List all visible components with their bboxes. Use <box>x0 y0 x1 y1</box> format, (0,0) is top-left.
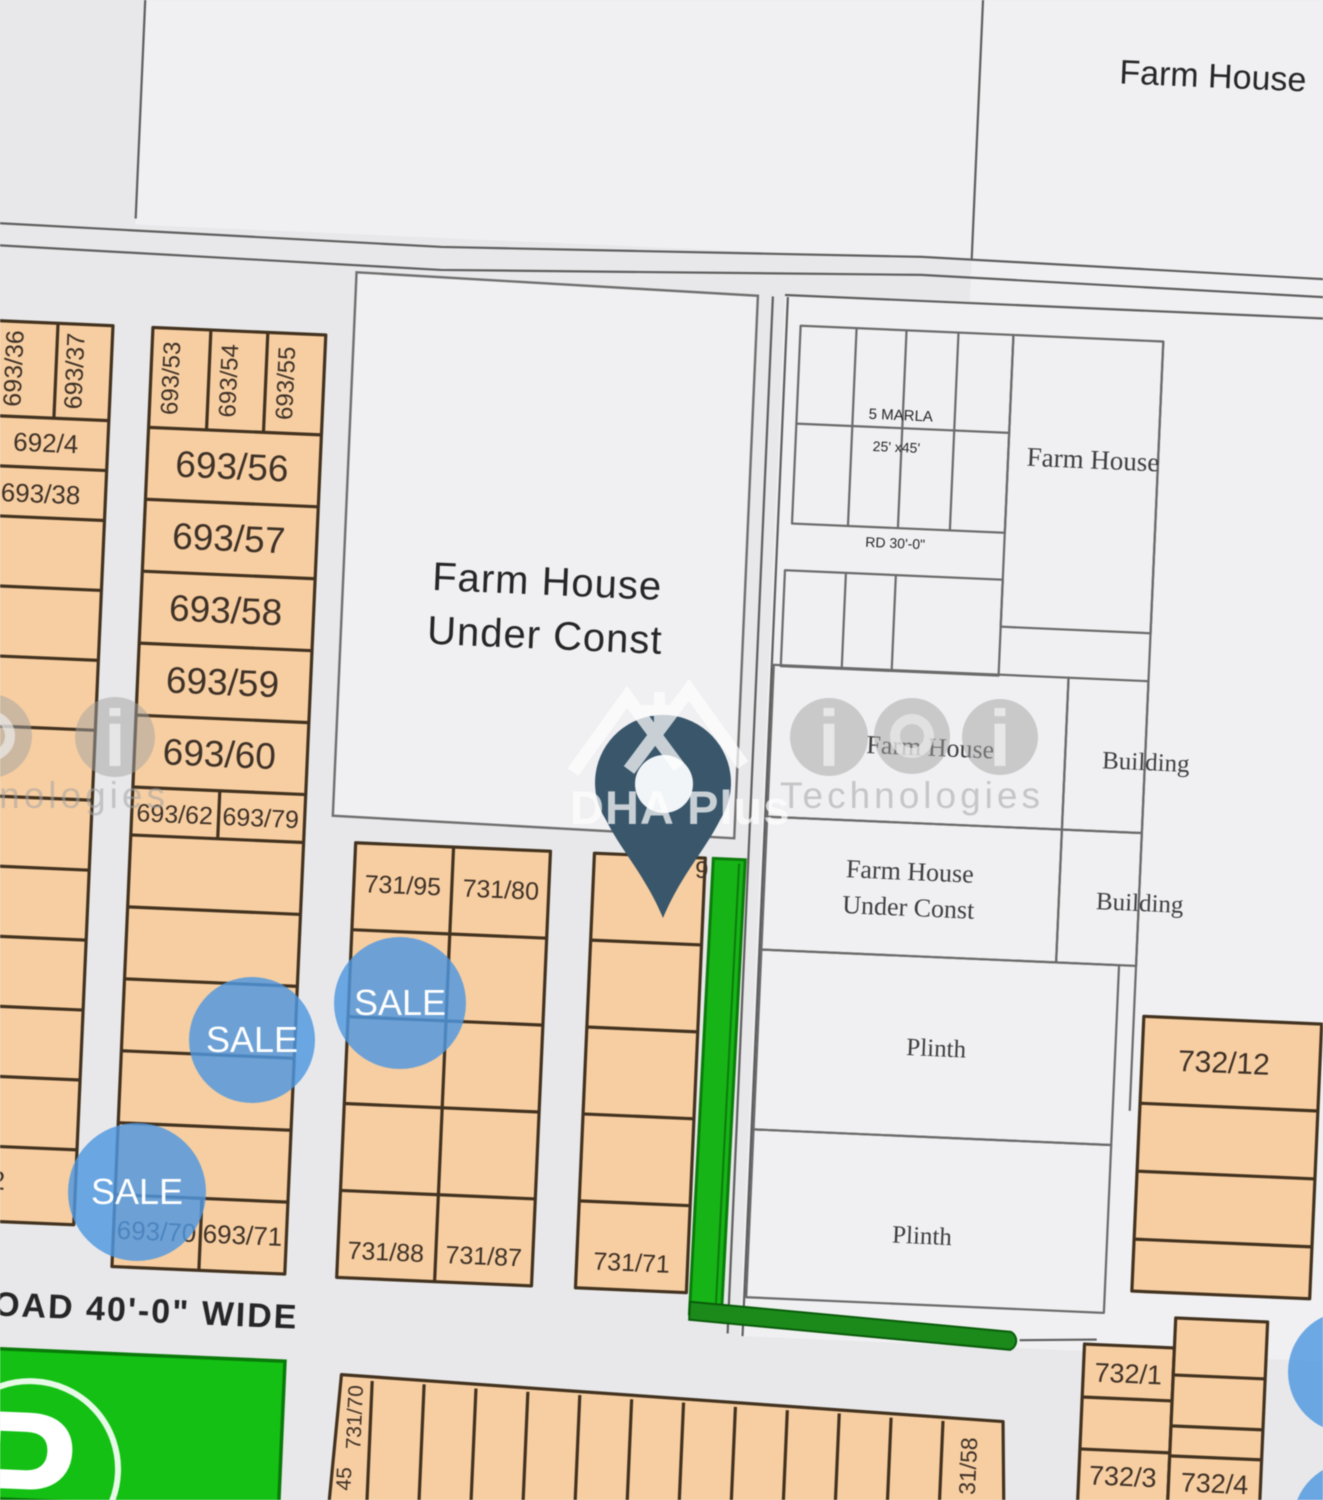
plot-label-731-87: 731/87 <box>445 1241 523 1272</box>
plot-label-31-58: 31/58 <box>954 1437 982 1496</box>
plinth-upper-label: Plinth <box>906 1034 967 1064</box>
fh-under-const-right-line1: Farm House <box>845 854 974 889</box>
plot-label-731-88: 731/88 <box>347 1237 425 1268</box>
plot-label-732-4: 732/4 <box>1180 1467 1249 1500</box>
building-lower-label: Building <box>1095 888 1184 919</box>
plot-label-731-79-partial: 9 <box>695 857 710 885</box>
plot-label-731-95: 731/95 <box>364 870 442 901</box>
sale-badge[interactable]: SALE <box>334 937 466 1069</box>
building-upper-label: Building <box>1102 747 1191 778</box>
plot-label-693-37: 693/37 <box>59 332 90 410</box>
sale-badge[interactable]: SALE <box>68 1123 206 1261</box>
plot-label-693-54: 693/54 <box>214 344 244 419</box>
rd-30-label: RD 30'-0" <box>865 534 925 553</box>
plot-label-732-1: 732/1 <box>1094 1358 1163 1391</box>
fh-under-const-right-line2: Under Const <box>842 890 976 925</box>
plot-column-731-right[interactable] <box>575 853 705 1292</box>
plot-label-693-56: 693/56 <box>175 444 290 490</box>
plot-label-732-3: 732/3 <box>1088 1460 1157 1493</box>
sale-label: SALE <box>206 1019 298 1060</box>
plot-label-45: 45 <box>332 1467 356 1491</box>
plot-label-693-71: 693/71 <box>202 1218 283 1251</box>
farm-house-right-label: Farm House <box>1026 442 1160 478</box>
top-right-block <box>970 0 1323 319</box>
plot-label-693-58: 693/58 <box>168 587 283 633</box>
plot-label-693-38: 693/38 <box>0 477 81 510</box>
top-middle-block <box>135 0 986 261</box>
plot-label-693-53: 693/53 <box>156 341 186 416</box>
sale-badge[interactable]: SALE <box>189 977 315 1103</box>
watermark-tech-left: Technologies <box>0 775 169 816</box>
brand-name: DHA Plus <box>570 781 790 834</box>
plot-label-693-60: 693/60 <box>162 731 277 777</box>
plot-label-731-80: 731/80 <box>462 874 540 905</box>
watermark-right: i i Technologies <box>780 694 1044 816</box>
plot-label-693-59: 693/59 <box>165 659 280 705</box>
park-label: P <box>0 1373 81 1500</box>
park: P <box>0 1346 285 1500</box>
plot-label-692-4: 692/4 <box>13 426 79 459</box>
plot-label-693-55: 693/55 <box>271 346 301 421</box>
map-viewport[interactable]: P <box>0 0 1323 1500</box>
plot-label-732-12: 732/12 <box>1177 1045 1270 1082</box>
sale-label: SALE <box>91 1171 183 1212</box>
marla-label: 5 MARLA <box>868 406 933 426</box>
plot-label-731-70: 731/70 <box>342 1385 368 1450</box>
watermark-o-icon <box>874 698 950 774</box>
marla-size-label: 25' x45' <box>872 438 920 456</box>
watermark-i-glyph: i <box>818 694 840 783</box>
plot-label-693-36: 693/36 <box>0 330 30 408</box>
plot-map-canvas[interactable]: P <box>0 0 1323 1500</box>
plot-label-731-71: 731/71 <box>593 1248 671 1279</box>
plinth-lower-label: Plinth <box>892 1222 953 1252</box>
brand-plus-icon <box>654 692 665 730</box>
watermark-tech-right: Technologies <box>780 775 1044 816</box>
plot-label-693-79: 693/79 <box>222 803 300 834</box>
sale-label: SALE <box>354 982 446 1023</box>
watermark-i-glyph: i <box>989 694 1011 783</box>
watermark-i-glyph: i <box>104 694 126 783</box>
plot-label-693-57: 693/57 <box>171 515 286 561</box>
